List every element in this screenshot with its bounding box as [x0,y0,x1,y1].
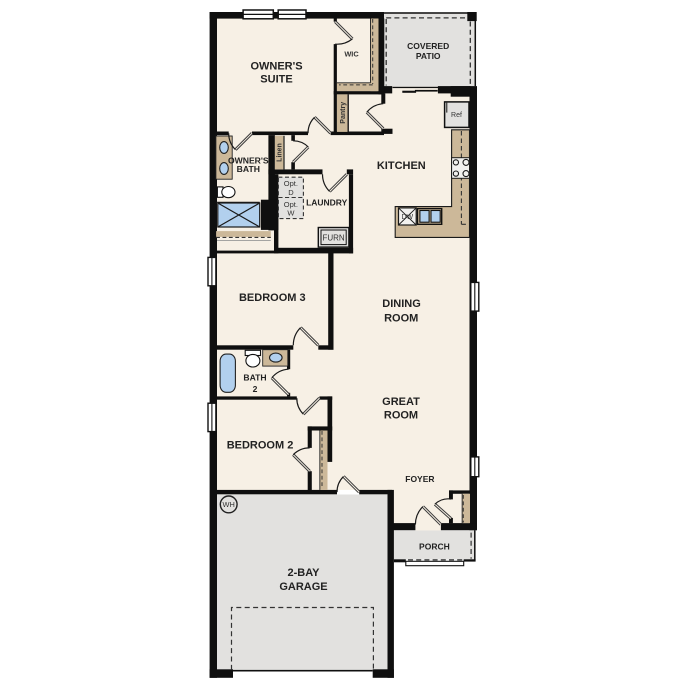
svg-text:DW: DW [401,214,413,221]
svg-text:WIC: WIC [344,49,359,58]
svg-text:PATIO: PATIO [416,51,441,61]
svg-text:BATH: BATH [243,373,266,383]
svg-text:LAUNDRY: LAUNDRY [306,198,348,208]
svg-text:COVERED: COVERED [407,41,449,51]
svg-text:Ref: Ref [451,112,462,119]
svg-text:SUITE: SUITE [260,73,292,85]
svg-text:2: 2 [253,384,258,394]
svg-text:PORCH: PORCH [419,542,450,552]
svg-text:Pantry: Pantry [340,102,347,124]
svg-text:ROOM: ROOM [384,313,418,325]
svg-text:Linen: Linen [276,143,283,162]
svg-text:DINING: DINING [382,298,421,310]
svg-text:BATH: BATH [237,164,260,174]
svg-text:GARAGE: GARAGE [279,581,327,593]
svg-text:KITCHEN: KITCHEN [377,160,426,172]
svg-text:D: D [288,188,294,197]
svg-text:ROOM: ROOM [384,409,418,421]
svg-text:FOYER: FOYER [405,474,434,484]
svg-text:2-BAY: 2-BAY [288,567,321,579]
svg-text:OWNER'S: OWNER'S [250,60,302,72]
svg-text:BEDROOM 3: BEDROOM 3 [239,292,306,304]
svg-text:W: W [287,209,295,218]
svg-text:FURN: FURN [322,234,344,243]
svg-text:WH: WH [223,500,235,509]
svg-text:GREAT: GREAT [382,396,420,408]
svg-text:BEDROOM 2: BEDROOM 2 [227,439,294,451]
